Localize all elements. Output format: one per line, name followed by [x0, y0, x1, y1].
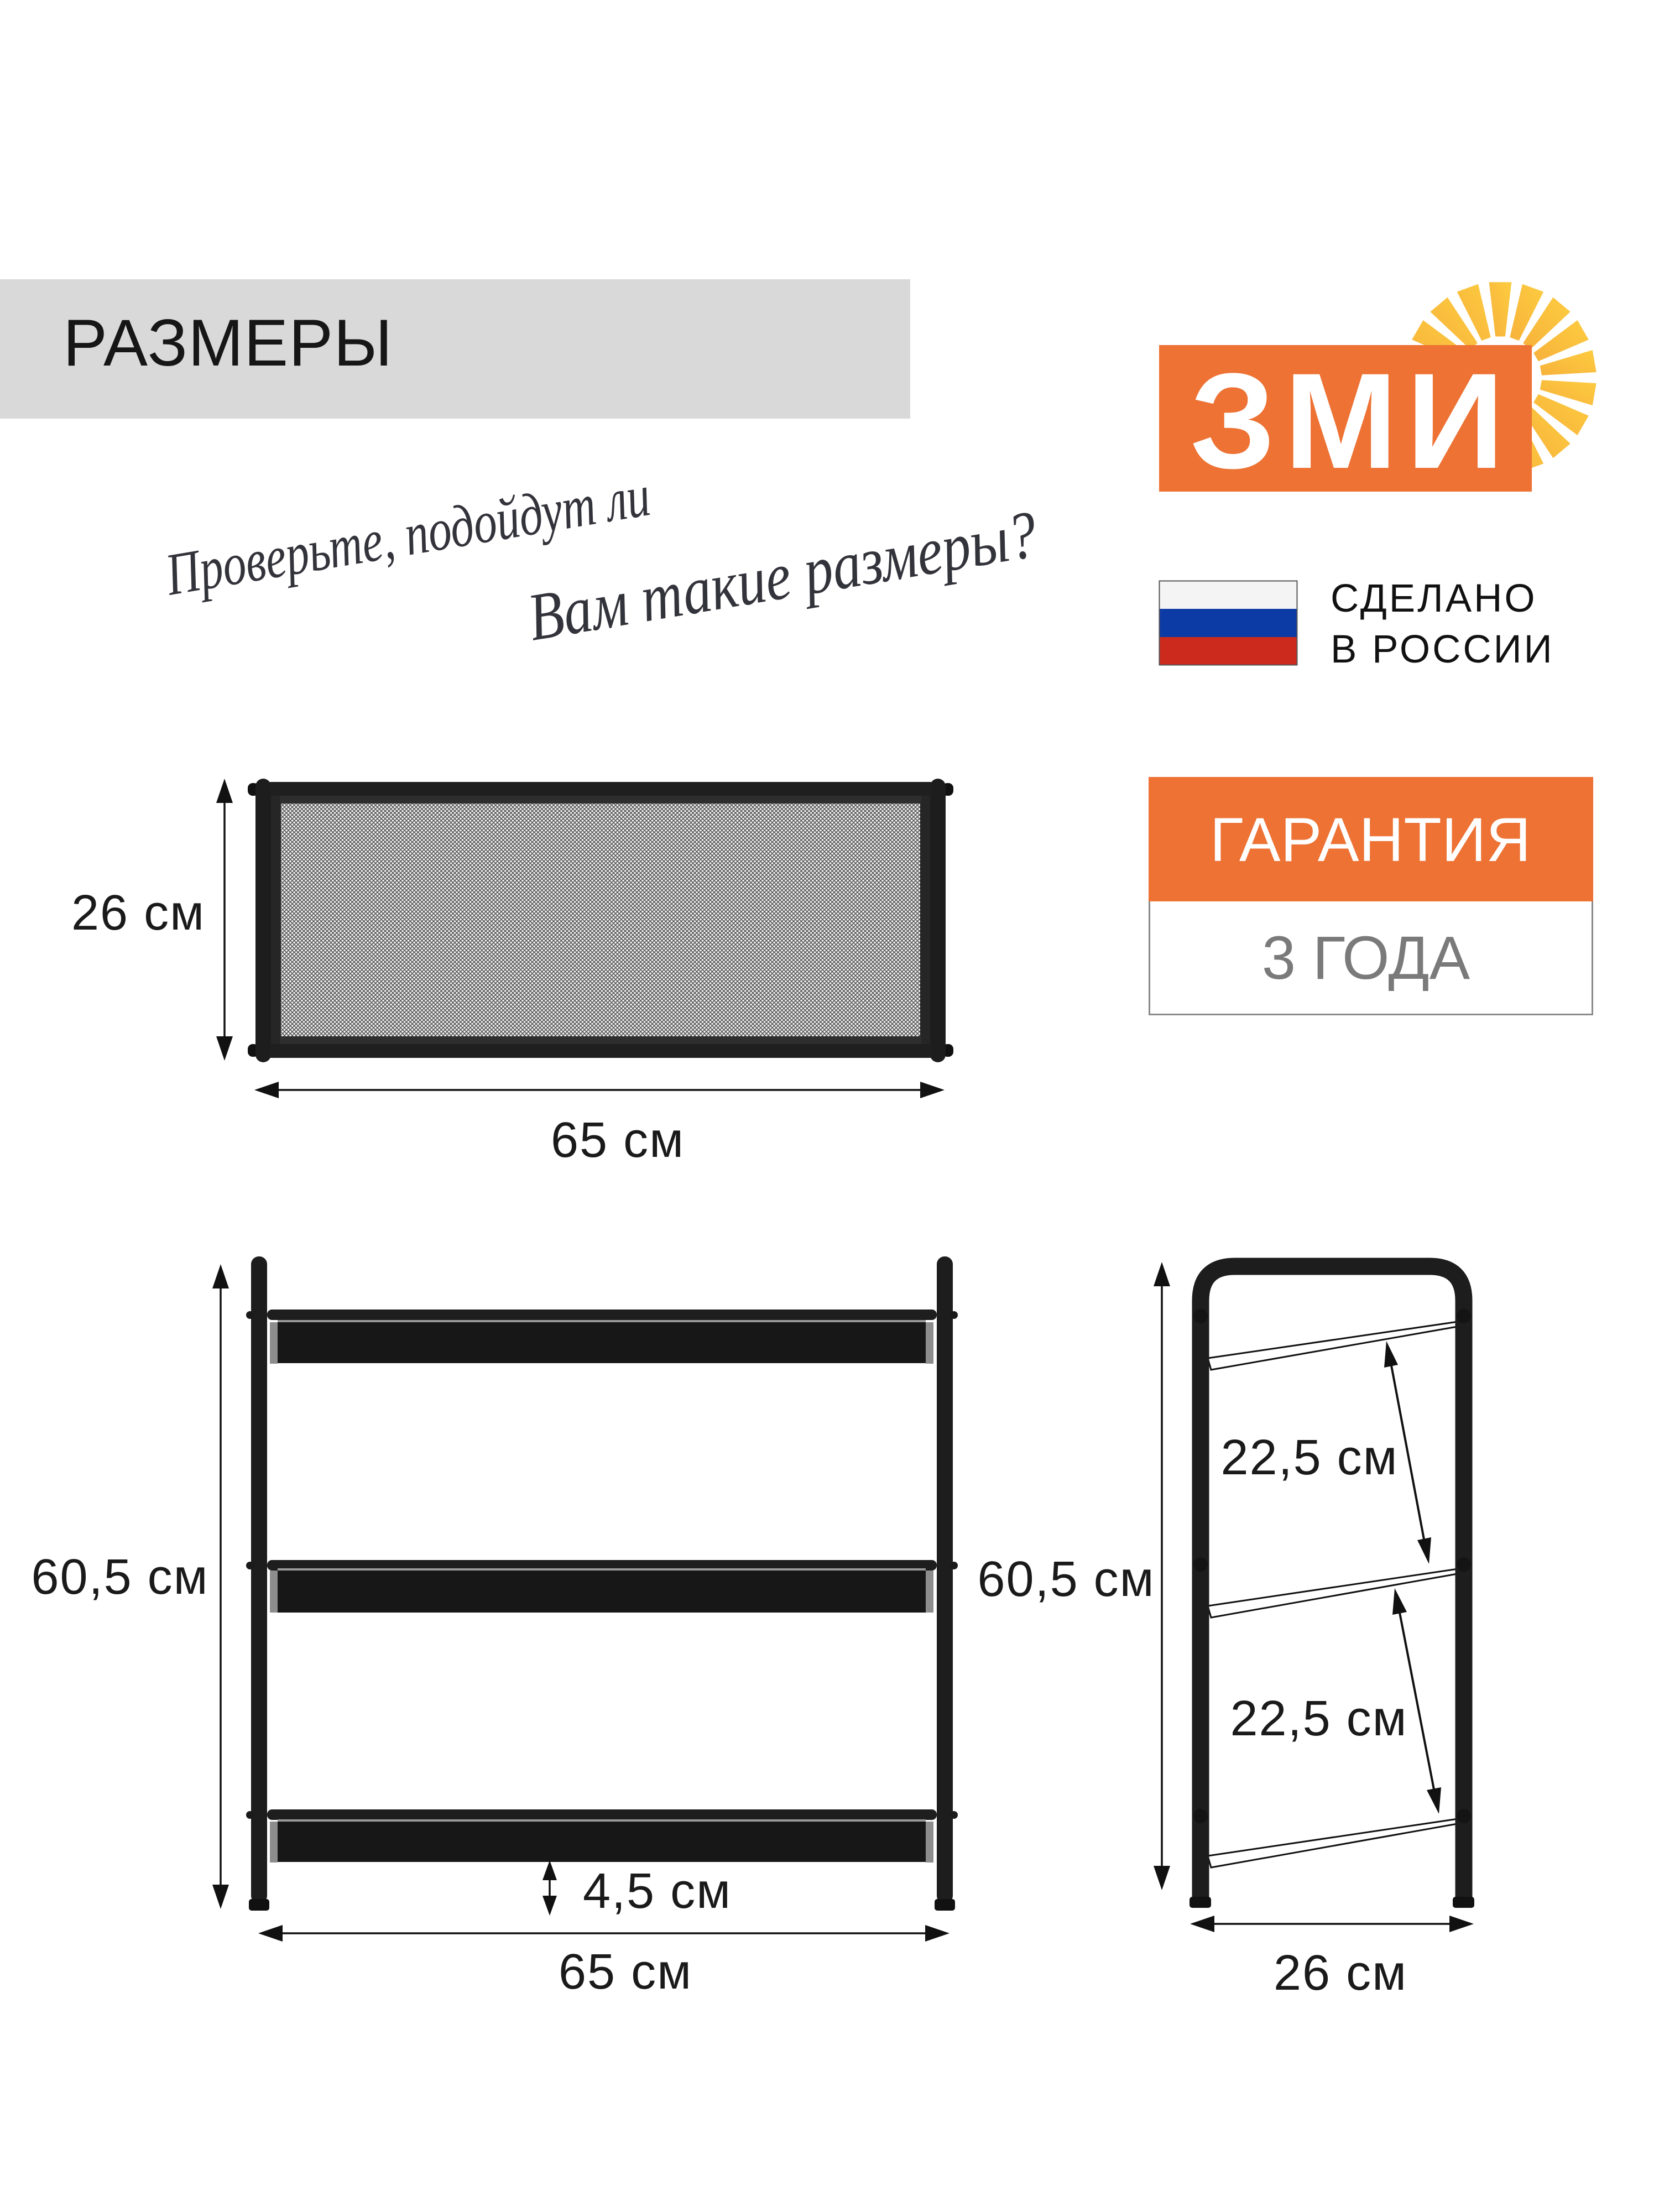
svg-text:ГАРАНТИЯ: ГАРАНТИЯ: [1210, 805, 1531, 874]
svg-text:26 см: 26 см: [71, 885, 205, 941]
svg-text:СДЕЛАНО: СДЕЛАНО: [1331, 577, 1537, 620]
svg-text:4,5 см: 4,5 см: [583, 1864, 732, 1919]
svg-text:ЗМИ: ЗМИ: [1190, 345, 1513, 497]
svg-text:65 см: 65 см: [551, 1113, 685, 1168]
svg-text:22,5 см: 22,5 см: [1220, 1430, 1398, 1485]
svg-text:65 см: 65 см: [559, 1944, 692, 2000]
svg-text:60,5 см: 60,5 см: [31, 1550, 208, 1605]
svg-text:22,5 см: 22,5 см: [1230, 1691, 1407, 1746]
svg-text:60,5 см: 60,5 см: [977, 1552, 1155, 1607]
svg-text:3 ГОДА: 3 ГОДА: [1262, 924, 1470, 992]
svg-text:РАЗМЕРЫ: РАЗМЕРЫ: [63, 306, 393, 380]
svg-text:В РОССИИ: В РОССИИ: [1331, 628, 1554, 671]
svg-text:26 см: 26 см: [1274, 1945, 1407, 2001]
